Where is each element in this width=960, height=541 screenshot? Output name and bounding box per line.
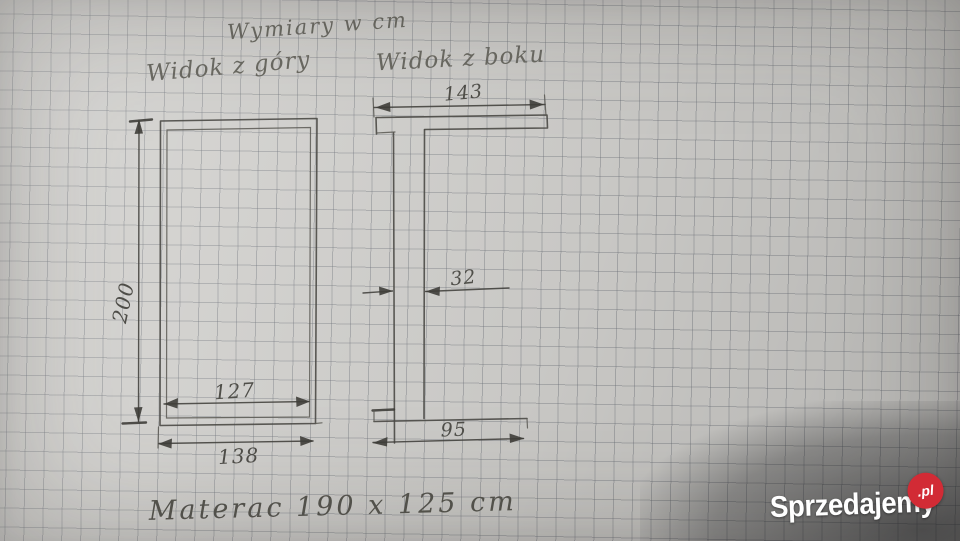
dim-127-value: 127 [213,378,256,405]
dim-127-arrow-right [296,397,310,408]
dim-200-top-tick [130,120,152,122]
top-view-inner-rect [167,128,311,419]
dimension-outer-width-138: 138 [158,427,314,469]
side-view-foot-tick [373,410,395,411]
top-view-drawing: 200 127 138 [107,119,322,470]
dim-32-arrow-left-pointing [426,287,441,297]
dim-200-value: 200 [107,280,139,326]
dim-143-arrow-left [376,102,391,112]
dim-138-ext-left [158,427,159,448]
dim-138-arrow-right [300,436,314,446]
watermark-tld-text: .pl [916,482,934,500]
dim-200-arrow-down [134,407,143,422]
side-view-post-right-edge [424,130,425,419]
dimension-base-length-95: 95 [373,419,525,447]
photo-canvas: Wymiary w cm Widok z góry Widok z boku 2… [0,0,960,541]
sprzedajemy-watermark: Sprzedajemy .pl [769,485,950,525]
dim-200-line [139,122,140,422]
dim-143-value: 143 [443,80,484,105]
dimension-top-length-143: 143 [373,80,546,117]
dimension-inner-width-127: 127 [164,378,310,409]
side-view-base-right-tick [527,419,528,429]
label-mattress-size: Materac 190 x 125 cm [147,486,517,527]
dim-138-arrow-left [158,439,172,449]
sketch-drawing: Wymiary w cm Widok z góry Widok z boku 2… [0,0,960,541]
dimension-height-200: 200 [107,119,152,424]
dim-200-bottom-tick [123,423,147,424]
dimension-thickness-32: 32 [363,266,509,296]
dim-143-line [374,105,545,108]
note-dimensions-unit: Wymiary w cm [226,8,408,45]
dim-143-ext-right [545,95,547,116]
dim-32-arrow-right-pointing [379,287,393,296]
side-view-top-flange [376,115,548,134]
dim-95-value: 95 [440,419,467,442]
dim-95-arrow-left [373,437,388,447]
side-view-flange-left-bottom [377,132,396,133]
label-top-view: Widok z góry [145,47,311,87]
side-view-post-left-edge [394,133,395,443]
label-side-view: Widok z boku [375,42,545,77]
dim-138-line [159,441,313,444]
side-view-drawing: 143 32 95 [363,80,548,446]
dim-95-arrow-right [510,434,525,444]
dim-138-value: 138 [217,443,259,469]
dim-143-arrow-right [530,100,545,110]
dim-32-value: 32 [449,266,477,291]
top-view-bottom-overshoot [316,423,323,424]
